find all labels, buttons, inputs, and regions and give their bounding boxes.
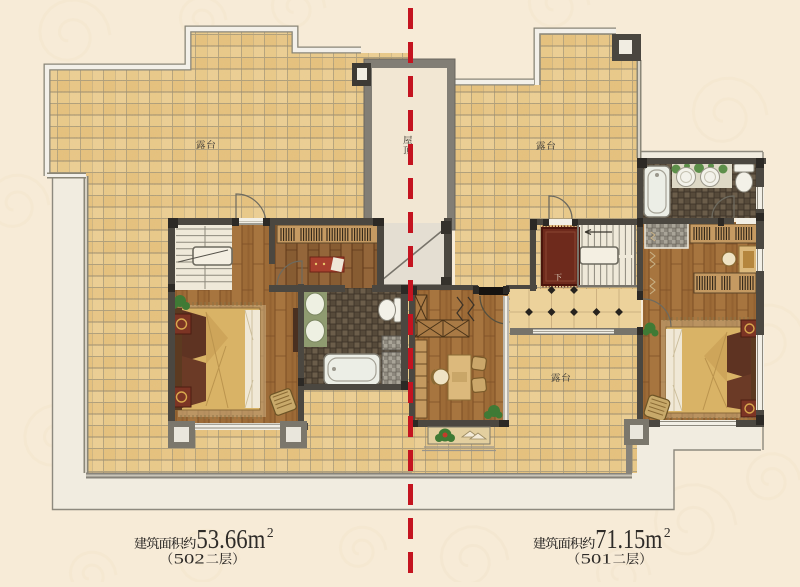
svg-text:71.15m: 71.15m xyxy=(595,523,662,554)
svg-text:502: 502 xyxy=(174,552,205,568)
svg-text:53.66m: 53.66m xyxy=(196,523,265,554)
svg-text:2: 2 xyxy=(664,525,671,540)
svg-text:501: 501 xyxy=(581,552,612,568)
svg-text:2: 2 xyxy=(267,525,274,540)
